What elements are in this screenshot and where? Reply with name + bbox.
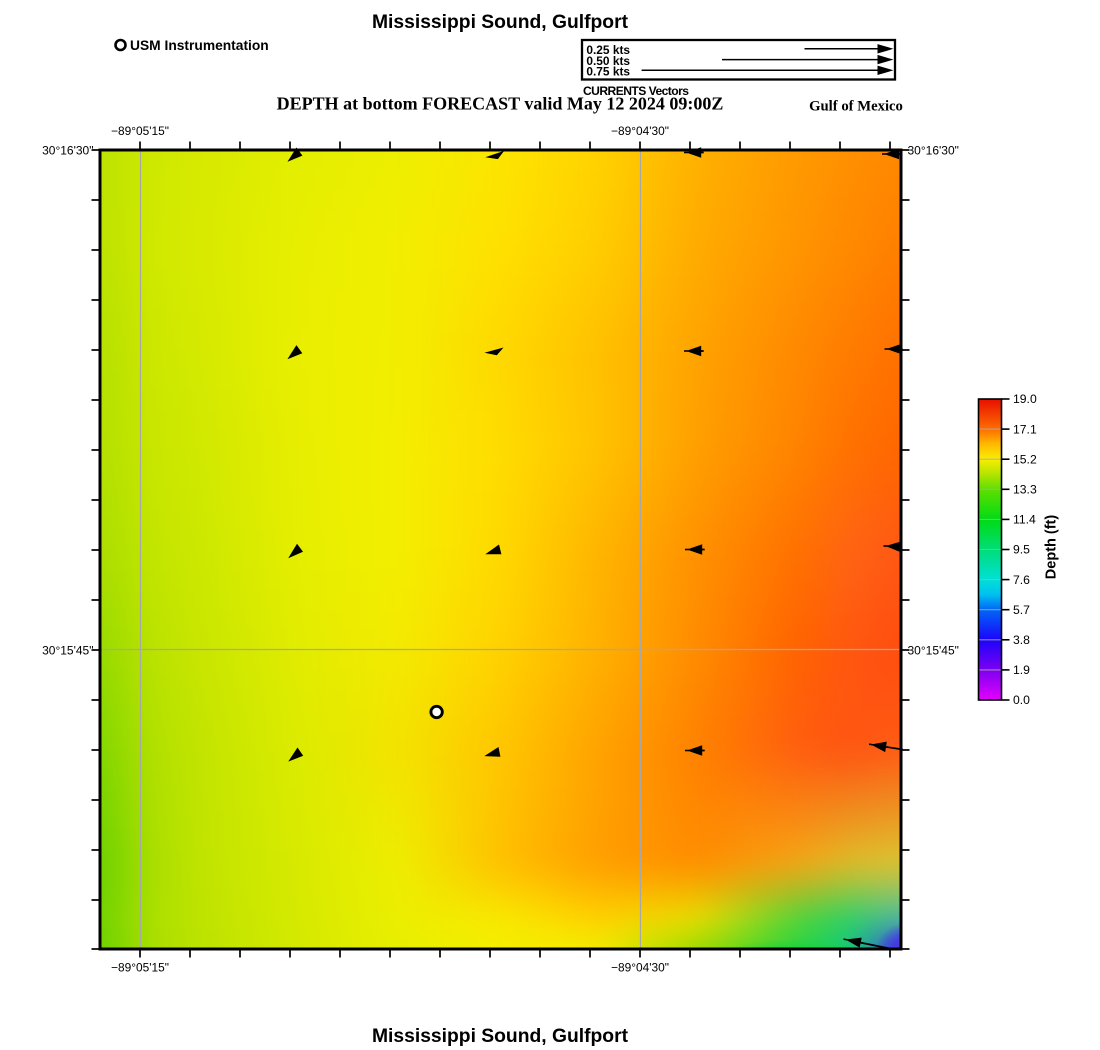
- svg-text:11.4: 11.4: [1013, 513, 1036, 527]
- svg-text:Gulf of Mexico: Gulf of Mexico: [809, 99, 903, 115]
- svg-text:7.6: 7.6: [1013, 573, 1030, 587]
- svg-text:19.0: 19.0: [1013, 392, 1037, 406]
- svg-text:−89°05'15": −89°05'15": [111, 124, 169, 138]
- svg-text:0.0: 0.0: [1013, 693, 1030, 707]
- svg-text:13.3: 13.3: [1013, 483, 1037, 497]
- svg-text:−89°04'30": −89°04'30": [611, 124, 669, 138]
- svg-text:30°16'30": 30°16'30": [908, 144, 959, 158]
- svg-text:30°15'45": 30°15'45": [908, 644, 959, 658]
- svg-text:3.8: 3.8: [1013, 633, 1030, 647]
- svg-text:Mississippi Sound, Gulfport: Mississippi Sound, Gulfport: [372, 12, 629, 33]
- svg-text:Mississippi Sound, Gulfport: Mississippi Sound, Gulfport: [372, 1026, 629, 1047]
- svg-text:−89°05'15": −89°05'15": [111, 961, 169, 975]
- svg-text:−89°04'30": −89°04'30": [611, 961, 669, 975]
- svg-text:USM Instrumentation: USM Instrumentation: [130, 38, 269, 53]
- svg-text:Depth (ft): Depth (ft): [1044, 515, 1060, 580]
- svg-text:9.5: 9.5: [1013, 543, 1030, 557]
- svg-text:15.2: 15.2: [1013, 452, 1037, 466]
- svg-text:17.1: 17.1: [1013, 422, 1037, 436]
- svg-text:1.9: 1.9: [1013, 663, 1030, 677]
- svg-text:0.75 kts: 0.75 kts: [586, 65, 630, 79]
- svg-text:30°16'30": 30°16'30": [42, 144, 93, 158]
- svg-text:DEPTH at bottom FORECAST valid: DEPTH at bottom FORECAST valid May 12 20…: [277, 94, 724, 114]
- svg-text:30°15'45": 30°15'45": [42, 644, 93, 658]
- svg-text:5.7: 5.7: [1013, 603, 1030, 617]
